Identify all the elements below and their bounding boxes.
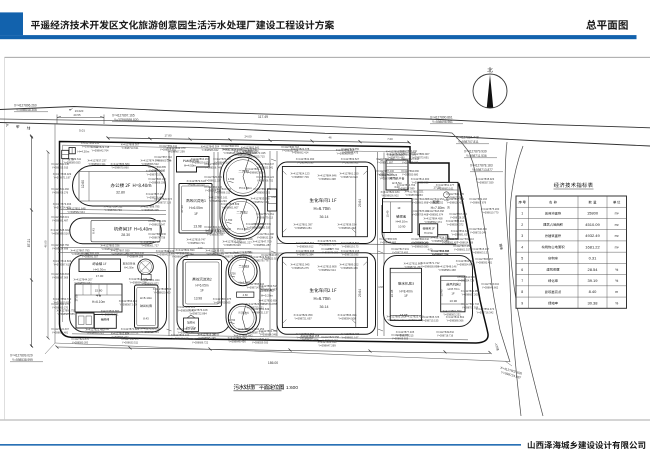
svg-text:12.60: 12.60: [81, 180, 85, 188]
svg-text:Y=598579.113: Y=598579.113: [257, 216, 274, 219]
svg-text:Y=598580.300: Y=598580.300: [72, 341, 89, 344]
svg-text:36.14: 36.14: [320, 305, 329, 309]
svg-text:13.98: 13.98: [194, 297, 202, 301]
svg-text:Y=598673.571: Y=598673.571: [102, 312, 120, 316]
svg-text:39.19: 39.19: [587, 278, 598, 283]
svg-text:Y=598569.523: Y=598569.523: [254, 191, 271, 194]
svg-text:Y=598566.812: Y=598566.812: [297, 244, 315, 248]
svg-text:Y=598663.131: Y=598663.131: [472, 250, 490, 254]
svg-text:17.00: 17.00: [96, 274, 104, 278]
svg-text:Y=598711.257: Y=598711.257: [404, 265, 422, 269]
svg-text:Y=598571.897: Y=598571.897: [377, 161, 394, 164]
svg-text:Y=598588.366: Y=598588.366: [447, 318, 465, 322]
svg-text:Y=598688.516: Y=598688.516: [51, 231, 69, 235]
svg-text:Y=598709.733: Y=598709.733: [104, 208, 122, 212]
svg-text:Y=598611.107: Y=598611.107: [205, 179, 222, 182]
svg-text:Y=598607.209: Y=598607.209: [462, 292, 480, 296]
svg-text:Y=598705.565: Y=598705.565: [214, 300, 232, 304]
svg-text:Y=598657.709: Y=598657.709: [291, 175, 309, 179]
svg-text:Y=598568.336: Y=598568.336: [149, 181, 166, 184]
svg-text:Y=598715.155: Y=598715.155: [422, 318, 440, 322]
svg-text:Y=598656.252: Y=598656.252: [427, 201, 444, 204]
svg-text:Y=598655.915: Y=598655.915: [52, 166, 69, 169]
svg-text:Y=598725.595: Y=598725.595: [342, 252, 360, 256]
svg-text:Y=598724.408: Y=598724.408: [54, 205, 72, 209]
svg-text:Y=598693.601: Y=598693.601: [342, 160, 360, 164]
svg-text:Y=598619.173: Y=598619.173: [342, 244, 360, 248]
svg-text:46.60: 46.60: [44, 240, 48, 247]
svg-text:H=8.40m: H=8.40m: [399, 289, 412, 293]
svg-text:15.80: 15.80: [95, 289, 103, 293]
svg-text:H=8.70m: H=8.70m: [448, 287, 460, 291]
svg-text:29.64: 29.64: [358, 289, 362, 297]
svg-text:36.14: 36.14: [320, 215, 329, 219]
svg-text:Y=598636.492: Y=598636.492: [338, 226, 356, 230]
svg-text:Y=598691.227: Y=598691.227: [234, 240, 252, 244]
svg-text:Y=598582.674: Y=598582.674: [427, 213, 444, 216]
svg-text:Y=598567.149: Y=598567.149: [120, 302, 138, 306]
svg-text:1681.22: 1681.22: [585, 244, 600, 249]
svg-text:5.01: 5.01: [79, 129, 85, 133]
svg-text:Y=598682.824: Y=598682.824: [247, 170, 265, 174]
svg-text:Y=598679.263: Y=598679.263: [405, 193, 423, 197]
svg-text:Y=598681.637: Y=598681.637: [452, 232, 470, 236]
svg-text:87.21: 87.21: [27, 239, 31, 248]
svg-text:%: %: [615, 279, 618, 283]
svg-text:Y=598696.961: Y=598696.961: [432, 120, 453, 124]
svg-text:Y=598586.842: Y=598586.842: [202, 148, 220, 152]
svg-text:H=6.70m: H=6.70m: [313, 206, 331, 211]
svg-text:Y=598695.125: Y=598695.125: [149, 169, 166, 172]
svg-text:Y=598623.921: Y=598623.921: [262, 257, 279, 260]
svg-text:Y=598600.330: Y=598600.330: [155, 159, 172, 162]
svg-text:Y=598614.668: Y=598614.668: [457, 241, 474, 244]
svg-text:24.00: 24.00: [245, 135, 252, 139]
svg-text:Y=598558.746: Y=598558.746: [205, 166, 222, 169]
svg-text:Y=598708.276: Y=598708.276: [52, 191, 69, 194]
svg-text:Y=598721.697: Y=598721.697: [294, 316, 312, 320]
svg-text:Y=598634.698: Y=598634.698: [52, 247, 69, 250]
svg-text:Y=598626.902: Y=598626.902: [381, 193, 399, 197]
svg-text:Y=598598.806: Y=598598.806: [297, 335, 315, 339]
svg-text:H=4.20m: H=4.20m: [78, 150, 90, 154]
svg-text:Y=598640.390: Y=598640.390: [297, 160, 315, 164]
svg-text:Y=598621.547: Y=598621.547: [149, 223, 166, 226]
svg-text:Y=598719.903: Y=598719.903: [222, 148, 239, 151]
svg-text:4.68: 4.68: [378, 286, 383, 289]
svg-text:Y=598630.800: Y=598630.800: [412, 180, 430, 184]
svg-text:Y=598557.559: Y=598557.559: [477, 180, 495, 184]
svg-text:Y=598572.504: Y=598572.504: [251, 200, 269, 204]
svg-text:7.00: 7.00: [387, 137, 393, 141]
svg-text:m: m: [615, 290, 618, 294]
svg-text:Y=598644.288: Y=598644.288: [127, 255, 144, 258]
svg-text:1F: 1F: [194, 212, 198, 216]
svg-text:H=6.05m: H=6.05m: [195, 284, 208, 288]
svg-text:28.54: 28.54: [587, 267, 598, 272]
svg-text:Y=598560.270: Y=598560.270: [52, 306, 69, 309]
svg-text:Y=598674.758: Y=598674.758: [149, 236, 166, 239]
svg-text:10.90: 10.90: [450, 299, 458, 303]
svg-text:Y=598551.287: Y=598551.287: [253, 243, 271, 247]
svg-text:Y=598694.788: Y=598694.788: [130, 280, 148, 284]
svg-text:Y=598698.686: Y=598698.686: [400, 153, 417, 156]
svg-text:1F: 1F: [404, 294, 408, 298]
svg-text:29.64: 29.64: [358, 199, 362, 207]
svg-text:Y=598704.378: Y=598704.378: [380, 176, 398, 180]
svg-text:Y=598602.704: Y=598602.704: [432, 253, 449, 256]
svg-text:Y=598591.927: Y=598591.927: [82, 255, 99, 258]
svg-text:Y=598729.493: Y=598729.493: [392, 251, 409, 254]
svg-text:Y=598642.764: Y=598642.764: [92, 148, 110, 152]
svg-text:Y=598647.269: Y=598647.269: [318, 343, 336, 347]
svg-text:2: 2: [521, 223, 523, 227]
svg-text:Y=598632.324: Y=598632.324: [257, 236, 274, 239]
svg-text:4.60: 4.60: [243, 293, 249, 297]
svg-text:H=1.50m: H=1.50m: [124, 267, 134, 270]
svg-text:Y=598570.710: Y=598570.710: [222, 255, 239, 258]
svg-text:Y=598651.167: Y=598651.167: [342, 335, 360, 339]
svg-text:Y=598593.721: Y=598593.721: [187, 241, 205, 245]
svg-text:Y=598686.722: Y=598686.722: [192, 341, 209, 344]
svg-text:Y=598645.475: Y=598645.475: [342, 151, 359, 154]
svg-text:Y=598612.294: Y=598612.294: [322, 339, 339, 342]
svg-text:Y=598697.499: Y=598697.499: [172, 255, 189, 258]
svg-text:8.40: 8.40: [589, 289, 598, 294]
svg-text:1.700: 1.700: [228, 177, 235, 181]
svg-text:Y=598597.619: Y=598597.619: [54, 262, 72, 266]
svg-text:Y=598610.770: Y=598610.770: [482, 210, 500, 214]
svg-text:Y=598718.716: Y=598718.716: [437, 334, 454, 337]
svg-text:H=4.5m: H=4.5m: [424, 232, 433, 235]
svg-text:Y=598593.451: Y=598593.451: [476, 261, 493, 264]
svg-text:Y=598624.258: Y=598624.258: [377, 173, 394, 176]
svg-text:Y=598538.999: Y=598538.999: [12, 358, 33, 362]
svg-text:H=5.20m: H=5.20m: [261, 294, 273, 298]
svg-text:Y=598635.885: Y=598635.885: [380, 241, 397, 244]
svg-text:32.80: 32.80: [116, 191, 125, 195]
svg-text:28.30: 28.30: [121, 233, 130, 237]
svg-text:Y=598609.583: Y=598609.583: [412, 244, 430, 248]
svg-text:Y=598613.481: Y=598613.481: [52, 331, 69, 334]
svg-text:Y=598670.860: Y=598670.860: [111, 165, 129, 169]
svg-text:Y=598659.233: Y=598659.233: [86, 331, 104, 335]
svg-text:1:600: 1:600: [286, 385, 298, 391]
svg-text:Y=598713.877: Y=598713.877: [472, 168, 493, 172]
svg-text:1.700: 1.700: [229, 273, 236, 276]
svg-text:Y=598666.692: Y=598666.692: [160, 148, 177, 151]
svg-text:Y=598706.752: Y=598706.752: [257, 179, 274, 182]
svg-text:Y=598688.246: Y=598688.246: [412, 241, 429, 244]
svg-text:Y=598671.197: Y=598671.197: [54, 175, 72, 179]
svg-text:Y=598684.348: Y=598684.348: [260, 332, 278, 336]
svg-text:Y=598577.589: Y=598577.589: [398, 186, 416, 190]
svg-text:Y=598687.909: Y=598687.909: [52, 276, 69, 279]
svg-text:Y=598631.137: Y=598631.137: [252, 310, 270, 314]
svg-text:1F: 1F: [200, 289, 204, 293]
svg-text:6.80: 6.80: [104, 327, 110, 331]
svg-text:Y=598584.468: Y=598584.468: [438, 268, 456, 272]
svg-text:Y=598728.306: Y=598728.306: [450, 216, 467, 219]
svg-text:13.40: 13.40: [440, 289, 444, 296]
svg-text:7: 7: [521, 279, 523, 283]
svg-text:9: 9: [521, 301, 523, 305]
svg-text:Y=598620.360: Y=598620.360: [154, 290, 172, 294]
svg-text:Y=598562.914: Y=598562.914: [318, 268, 336, 272]
svg-text:Y=598712.444: Y=598712.444: [141, 330, 159, 334]
svg-text:1: 1: [521, 212, 523, 216]
svg-text:20.55: 20.55: [74, 113, 81, 117]
svg-text:Y=598617.649: Y=598617.649: [234, 337, 252, 341]
svg-text:Y=598556.372: Y=598556.372: [447, 222, 465, 226]
svg-text:Y=598554.848: Y=598554.848: [457, 262, 475, 266]
svg-text:22.38: 22.38: [390, 289, 394, 297]
svg-text:Y=598643.101: Y=598643.101: [214, 161, 231, 164]
svg-text:4510.09: 4510.09: [585, 222, 600, 227]
svg-text:Y=598667.879: Y=598667.879: [470, 201, 487, 204]
svg-text:H=8.10m: H=8.10m: [140, 296, 153, 300]
svg-text:Y=598633.511: Y=598633.511: [122, 341, 139, 344]
svg-text:Y=598661.607: Y=598661.607: [222, 205, 240, 209]
svg-text:Y=598583.281: Y=598583.281: [294, 226, 312, 230]
svg-text:Y=598585.655: Y=598585.655: [57, 312, 75, 316]
svg-text:Y=598561.727: Y=598561.727: [141, 243, 159, 247]
svg-text:Y=598590.740: Y=598590.740: [240, 152, 257, 155]
svg-text:Y=598592.264: Y=598592.264: [282, 149, 299, 152]
svg-text:1F: 1F: [397, 206, 401, 210]
svg-text:Y=598601.517: Y=598601.517: [454, 248, 471, 251]
svg-text:Y=598628.426: Y=598628.426: [447, 200, 465, 204]
svg-text:Y=598635.305: Y=598635.305: [141, 208, 159, 212]
svg-text:Y=598707.939: Y=598707.939: [462, 306, 479, 309]
svg-text:1F: 1F: [451, 291, 455, 295]
svg-text:H=8.10m: H=8.10m: [396, 220, 408, 224]
svg-text:8.43: 8.43: [92, 228, 96, 234]
svg-text:30.38: 30.38: [587, 300, 598, 305]
svg-text:4.00: 4.00: [198, 247, 203, 250]
svg-text:Y=598622.734: Y=598622.734: [214, 231, 231, 234]
svg-text:Y=598582.944: Y=598582.944: [67, 210, 85, 214]
svg-text:H=6.70m: H=6.70m: [313, 296, 331, 301]
svg-text:Y=598603.311: Y=598603.311: [88, 162, 106, 166]
svg-text:4932.49: 4932.49: [585, 233, 600, 238]
svg-text:Y=598599.143: Y=598599.143: [178, 308, 196, 312]
svg-text:Y=598696.312: Y=598696.312: [214, 191, 231, 194]
svg-text:Y=598714.818: Y=598714.818: [247, 285, 265, 289]
svg-text:13.98: 13.98: [193, 225, 201, 229]
svg-text:10.90: 10.90: [398, 225, 406, 229]
svg-text:Y=598726.782: Y=598726.782: [122, 330, 140, 334]
svg-text:Y=598553.661: Y=598553.661: [74, 281, 92, 285]
svg-text:Y=598720.510: Y=598720.510: [187, 182, 205, 186]
svg-text:Y=598676.282: Y=598676.282: [322, 251, 339, 254]
svg-text:15800: 15800: [587, 211, 599, 216]
svg-text:Y=598720.240: Y=598720.240: [470, 231, 487, 234]
svg-text:46: 46: [328, 136, 332, 140]
svg-text:17.80: 17.80: [165, 134, 172, 138]
svg-text:6: 6: [521, 268, 523, 272]
svg-text:5: 5: [521, 257, 523, 261]
svg-text:H=6.05m: H=6.05m: [189, 206, 203, 210]
svg-text:117.49: 117.49: [258, 115, 268, 119]
svg-text:Y=598649.643: Y=598649.643: [172, 336, 190, 340]
svg-text:%: %: [615, 268, 618, 272]
svg-text:Y=598581.487: Y=598581.487: [52, 219, 69, 222]
svg-text:8.43: 8.43: [143, 317, 149, 321]
svg-text:Y=598665.505: Y=598665.505: [392, 337, 409, 340]
svg-text:Y=598652.354: Y=598652.354: [178, 330, 196, 334]
svg-text:Y=598654.728: Y=598654.728: [458, 279, 475, 282]
svg-text:1.700: 1.700: [229, 319, 236, 322]
svg-text:Y=598637.679: Y=598637.679: [387, 318, 405, 322]
svg-text:Y=598677.469: Y=598677.469: [402, 161, 419, 164]
svg-text:8: 8: [521, 290, 523, 294]
svg-text:Y=598648.306: Y=598648.306: [16, 108, 37, 112]
svg-text:Y=598604.498: Y=598604.498: [318, 177, 336, 181]
svg-text:Y=598653.541: Y=598653.541: [257, 166, 274, 169]
svg-text:H=6.10m: H=6.10m: [92, 300, 105, 304]
svg-text:Y=598710.920: Y=598710.920: [340, 175, 358, 179]
svg-text:Y=598559.933: Y=598559.933: [252, 341, 269, 344]
svg-text:Y=37598559.820: Y=37598559.820: [114, 118, 139, 122]
svg-text:H=5.30m: H=5.30m: [93, 268, 106, 272]
svg-text:Y=598668.486: Y=598668.486: [340, 266, 358, 270]
svg-text:15.40: 15.40: [385, 210, 389, 217]
svg-text:Y=598646.662: Y=598646.662: [482, 286, 499, 289]
svg-text:%: %: [615, 301, 618, 305]
svg-text:Y=598672.384: Y=598672.384: [297, 252, 315, 256]
svg-text:17.60: 17.60: [75, 294, 79, 301]
svg-text:Y=598683.161: Y=598683.161: [437, 186, 455, 190]
svg-text:Y=598727.119: Y=598727.119: [155, 201, 172, 204]
svg-text:1.700: 1.700: [226, 218, 233, 222]
svg-text:Y=598713.631: Y=598713.631: [122, 146, 140, 150]
svg-text:Y=598711.536: Y=598711.536: [466, 154, 487, 158]
svg-text:Y=598594.908: Y=598594.908: [338, 316, 356, 320]
svg-text:Y=598552.474: Y=598552.474: [424, 220, 442, 224]
svg-text:Y=598550.680: Y=598550.680: [402, 173, 419, 176]
svg-text:4: 4: [521, 245, 523, 249]
svg-text:Y=598707.811: Y=598707.811: [458, 140, 479, 144]
svg-text:Y=598675.945: Y=598675.945: [447, 196, 464, 199]
svg-text:Y=598615.275: Y=598615.275: [291, 266, 309, 270]
svg-text:Y=598716.342: Y=598716.342: [477, 310, 495, 314]
svg-text:27.33: 27.33: [180, 205, 184, 213]
svg-text:0.31: 0.31: [589, 256, 598, 261]
svg-text:4.68: 4.68: [271, 196, 276, 199]
svg-text:Y=598685.535: Y=598685.535: [254, 226, 271, 229]
svg-text:Y=598689.703: Y=598689.703: [318, 242, 336, 246]
svg-text:Y=598703.191: Y=598703.191: [147, 172, 165, 176]
svg-text:H=4.50m: H=4.50m: [239, 186, 252, 190]
svg-text:3: 3: [521, 234, 523, 238]
svg-text:186.00: 186.00: [268, 361, 278, 365]
